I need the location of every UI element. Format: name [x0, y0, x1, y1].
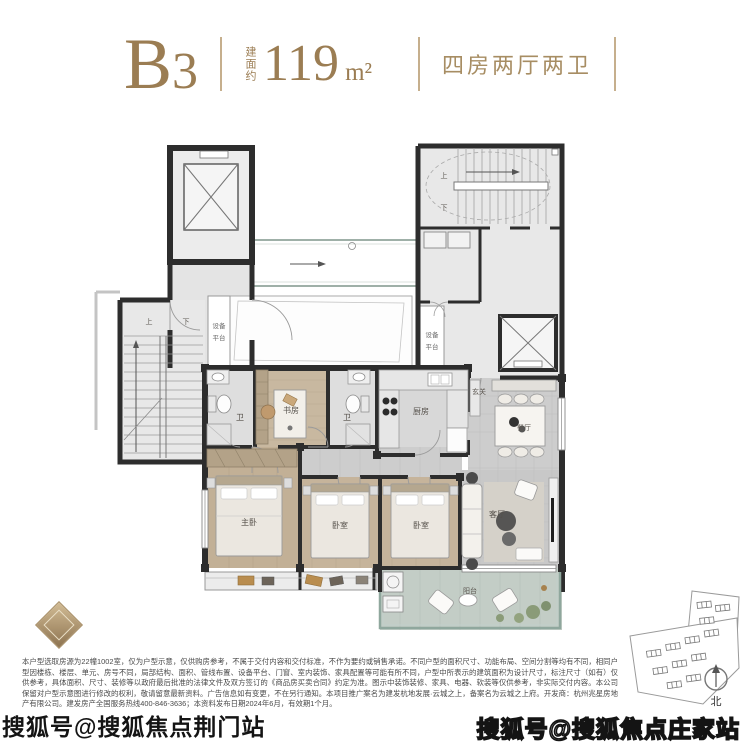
svg-text:卧室: 卧室	[332, 520, 348, 530]
equipment-platform-left: 设备 平台	[208, 296, 230, 368]
svg-text:卫: 卫	[343, 413, 351, 422]
compass-icon: 北	[705, 664, 727, 708]
header-divider	[614, 37, 616, 91]
floorplan-drawing: 设备 平台 设备 平台 上 下	[65, 135, 645, 645]
header-divider	[220, 37, 222, 91]
watermark-bottom-right: 搜狐号@搜狐焦点庄家站	[477, 710, 740, 744]
svg-text:阳台: 阳台	[463, 586, 477, 595]
svg-text:上: 上	[441, 171, 448, 180]
header-divider	[418, 37, 420, 91]
area-main: 119 m²	[263, 38, 372, 90]
area-value: 119	[263, 38, 339, 90]
svg-text:卧室: 卧室	[413, 520, 429, 530]
area-prefix-label: 建面约	[244, 46, 256, 82]
disclaimer-text: 本户型选取房源为22幢1002室，仅为户型示意，仅供购房参考，不属于交付内容和交…	[22, 657, 618, 710]
area-group: 建面约 119 m²	[244, 38, 396, 90]
layout-type-label: 四房两厅两卫	[442, 48, 592, 80]
svg-text:下: 下	[183, 318, 190, 326]
svg-text:设备: 设备	[213, 321, 227, 330]
svg-text:设备: 设备	[426, 330, 440, 339]
svg-text:上: 上	[146, 317, 153, 326]
area-unit: m²	[345, 59, 372, 87]
svg-text:北: 北	[711, 695, 722, 708]
lightwell	[230, 296, 412, 368]
plan-header: B 3 建面约 119 m² 四房两厅两卫	[0, 28, 740, 100]
svg-text:餐厅: 餐厅	[517, 423, 531, 432]
unit-name: B 3	[124, 28, 198, 100]
watermark-bottom-left: 搜狐号@搜狐焦点荆门站	[2, 708, 265, 742]
svg-text:平台: 平台	[426, 342, 439, 351]
living-furniture	[462, 472, 558, 570]
unit-number: 3	[172, 46, 198, 98]
svg-text:平台: 平台	[213, 333, 226, 342]
svg-text:下: 下	[441, 204, 448, 212]
walkway	[252, 240, 418, 286]
svg-text:玄关: 玄关	[472, 387, 486, 396]
bath1-fixtures	[207, 370, 231, 445]
svg-text:厨房: 厨房	[413, 406, 429, 416]
neighbor-wall	[96, 292, 120, 430]
floorplan: 设备 平台 设备 平台 上 下	[65, 135, 645, 645]
svg-text:客厅: 客厅	[489, 509, 505, 519]
bath2-fixtures	[346, 370, 370, 445]
svg-text:主卧: 主卧	[241, 517, 257, 527]
elevator-right	[500, 316, 556, 370]
unit-letter: B	[124, 28, 172, 100]
svg-text:书房: 书房	[283, 405, 299, 415]
svg-text:卫: 卫	[236, 413, 244, 422]
